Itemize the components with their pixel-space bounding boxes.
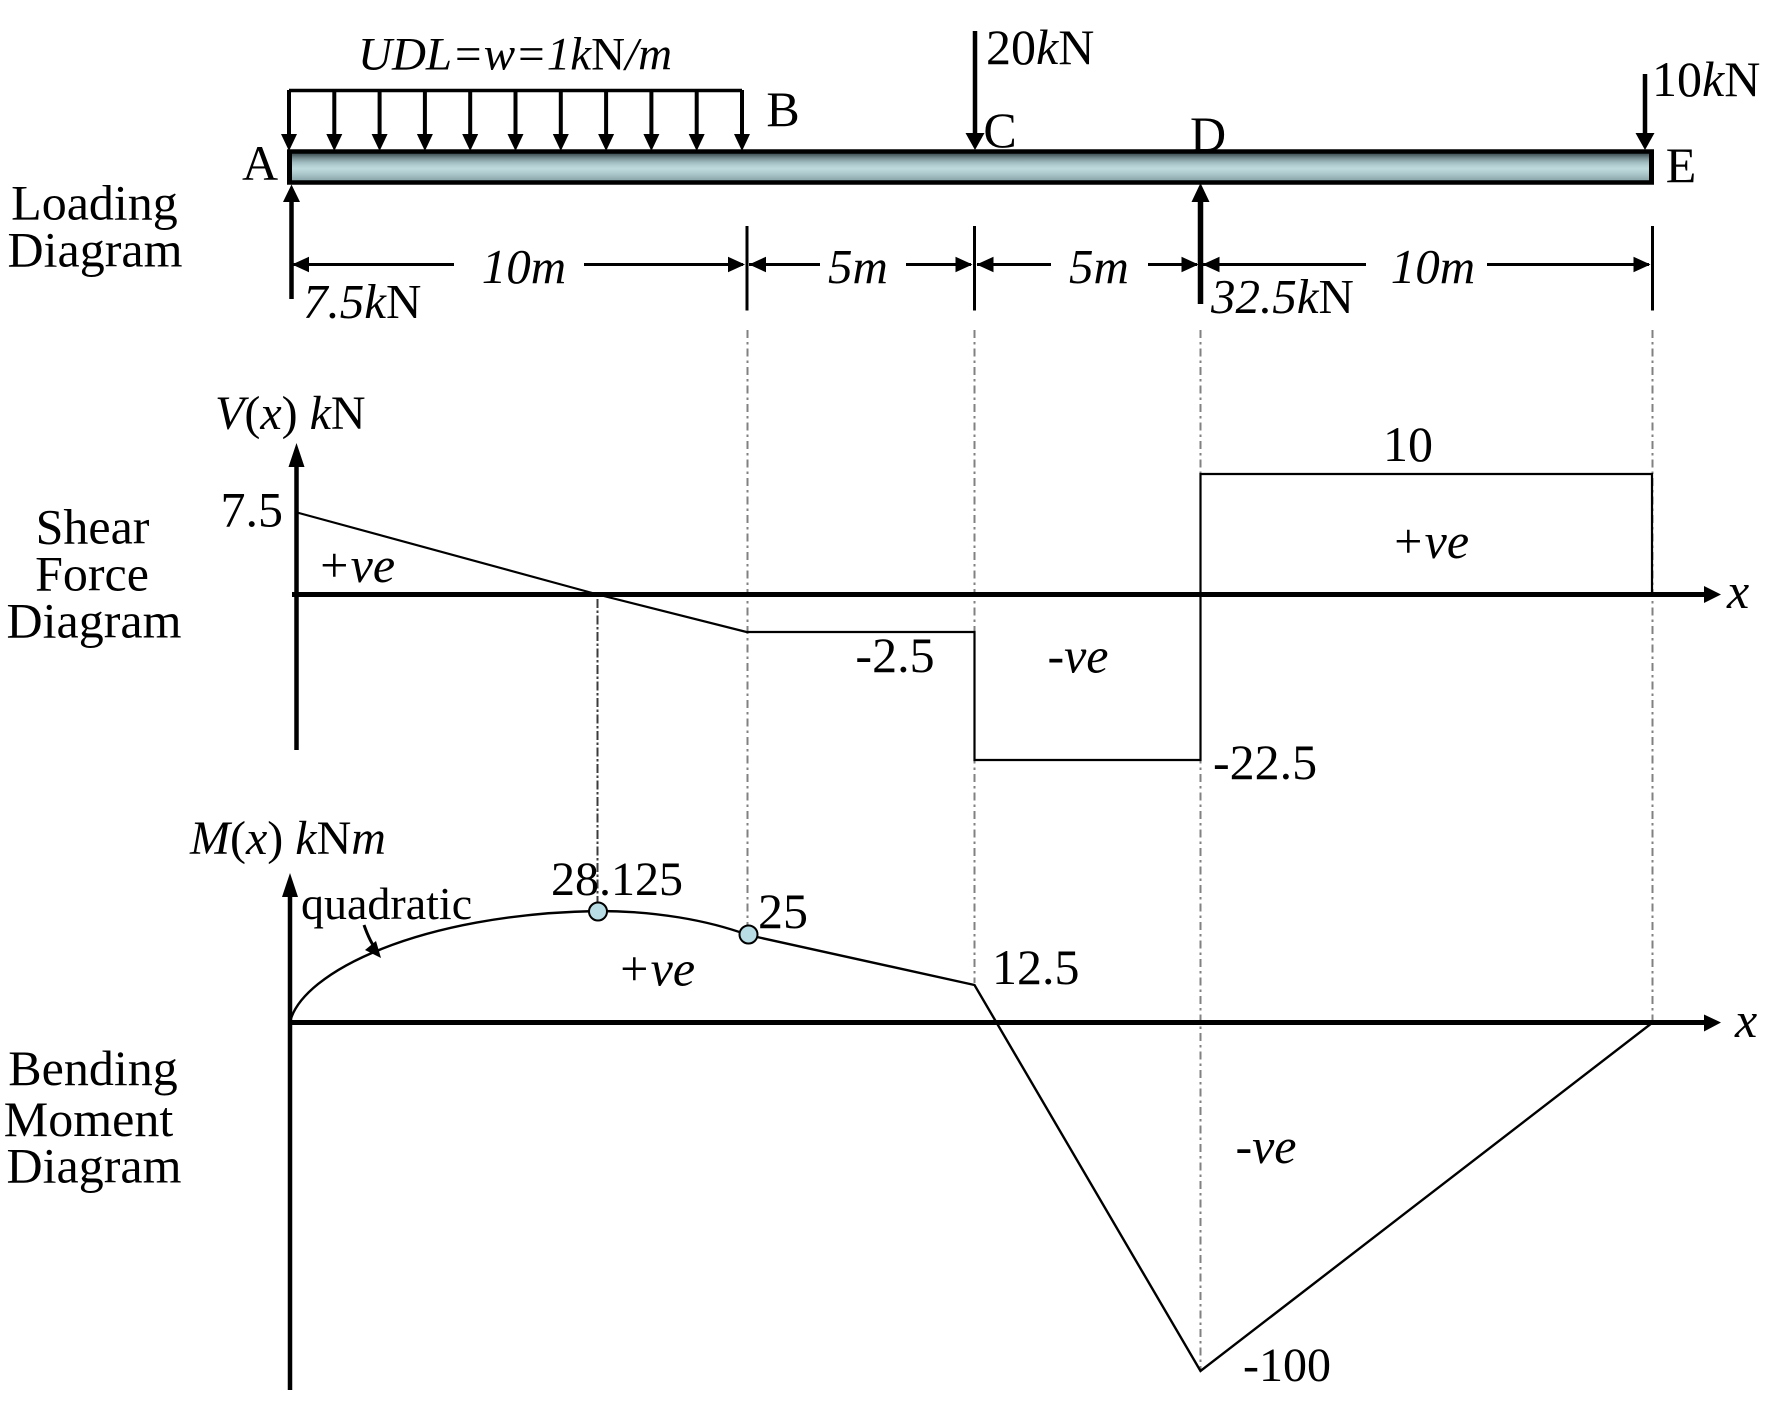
svg-text:25: 25 [758,883,808,939]
svg-text:-ve: -ve [1047,628,1108,684]
svg-text:7.5kN: 7.5kN [303,274,421,329]
svg-text:32.5kN: 32.5kN [1210,269,1354,324]
svg-text:+ve: +ve [617,941,695,997]
svg-text:10: 10 [1383,416,1433,472]
svg-text:7.5: 7.5 [221,482,284,538]
svg-text:x: x [1726,563,1749,619]
svg-text:UDL=w=1kN/m: UDL=w=1kN/m [358,29,672,81]
svg-text:Bending: Bending [8,1040,177,1096]
svg-text:28.125: 28.125 [551,853,683,906]
svg-text:quadratic: quadratic [301,878,472,929]
svg-text:-100: -100 [1243,1339,1331,1392]
svg-text:-2.5: -2.5 [855,627,934,683]
svg-text:10kN: 10kN [1652,51,1760,107]
svg-text:C: C [983,102,1016,158]
svg-text:5m: 5m [828,239,888,294]
svg-text:10m: 10m [482,239,566,294]
svg-text:V(x) kN: V(x) kN [215,387,366,440]
svg-text:x: x [1734,992,1757,1048]
svg-text:12.5: 12.5 [992,939,1080,995]
svg-text:20kN: 20kN [986,19,1094,75]
svg-text:-22.5: -22.5 [1213,734,1317,790]
svg-text:M(x) kNm: M(x) kNm [189,812,386,865]
svg-text:Diagram: Diagram [8,222,183,278]
svg-text:5m: 5m [1069,239,1129,294]
svg-text:E: E [1666,137,1697,193]
svg-text:Diagram: Diagram [7,1138,182,1194]
svg-text:Diagram: Diagram [7,593,182,649]
svg-text:+ve: +ve [317,537,395,593]
svg-text:10m: 10m [1391,239,1475,294]
svg-text:-ve: -ve [1235,1118,1296,1174]
svg-text:+ve: +ve [1391,513,1469,569]
svg-text:D: D [1190,106,1226,162]
svg-text:B: B [766,81,799,137]
svg-text:A: A [242,135,278,191]
